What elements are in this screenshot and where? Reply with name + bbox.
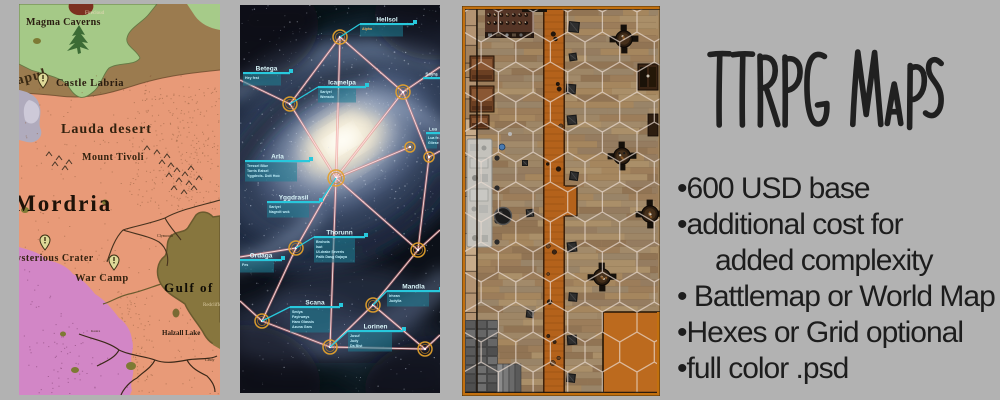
svg-text:Wensdo: Wensdo (320, 95, 335, 99)
svg-text:Da Bist: Da Bist (350, 344, 363, 348)
svg-text:Sariyel: Sariyel (269, 205, 281, 209)
svg-text:Arla: Arla (271, 154, 284, 161)
svg-text:Scana: Scana (305, 300, 325, 307)
svg-text:Palik Dasg Gajaya: Palik Dasg Gajaya (316, 255, 348, 259)
svg-text:Fes: Fes (242, 263, 248, 267)
svg-text:Jusuf: Jusuf (350, 334, 360, 338)
svg-text:Kastra: Kastra (91, 329, 101, 333)
svg-text:Clymouth: Clymouth (157, 233, 173, 238)
svg-text:Azuna Gars: Azuna Gars (292, 325, 312, 329)
svg-text:Mount Tivoli: Mount Tivoli (82, 152, 144, 163)
svg-text:Hellsol: Hellsol (376, 17, 398, 24)
svg-text:Brohots: Brohots (316, 240, 330, 244)
svg-text:Nagrolt wok: Nagrolt wok (269, 210, 290, 214)
svg-text:Castle Labria: Castle Labria (56, 78, 124, 89)
svg-text:Smiya: Smiya (292, 310, 304, 314)
svg-text:Lorinen: Lorinen (364, 324, 388, 331)
svg-text:Firecloud: Firecloud (85, 11, 105, 16)
svg-text:Yggdrasil: Yggdrasil (279, 195, 309, 202)
svg-text:Judy: Judy (350, 339, 358, 343)
svg-text:Ul-drake Severis: Ul-drake Severis (316, 250, 344, 254)
svg-text:Irhean: Irhean (389, 294, 400, 298)
svg-text:Sayra: Sayra (425, 72, 438, 77)
svg-text:Mordria: Mordria (19, 191, 112, 216)
svg-text:Gliese: Gliese (428, 141, 439, 145)
svg-text:Lua fe: Lua fe (428, 136, 439, 140)
svg-text:ysterious Crater: ysterious Crater (19, 253, 94, 264)
svg-text:Halzall Lake: Halzall Lake (162, 329, 200, 337)
svg-text:Redcliffe: Redcliffe (203, 303, 220, 308)
svg-text:Magma Caverns: Magma Caverns (26, 17, 101, 28)
svg-text:Gulf of: Gulf of (164, 280, 214, 295)
svg-text:Mandla: Mandla (402, 284, 425, 291)
svg-text:Alpha: Alpha (362, 27, 373, 31)
svg-text:War Camp: War Camp (75, 273, 129, 284)
svg-text:Fayirways: Fayirways (292, 315, 309, 319)
svg-text:Lauda desert: Lauda desert (61, 122, 152, 137)
svg-text:Judylla: Judylla (389, 299, 402, 303)
svg-text:Thorunn: Thorunn (326, 230, 352, 237)
svg-text:Tressel Blue: Tressel Blue (247, 164, 268, 168)
svg-text:Haro Glassis: Haro Glassis (292, 320, 314, 324)
svg-text:Hey fest: Hey fest (245, 76, 260, 80)
svg-text:Sariyel: Sariyel (320, 90, 332, 94)
svg-text:Torris Eatsel: Torris Eatsel (247, 169, 269, 173)
svg-text:Icamelpa: Icamelpa (328, 80, 356, 87)
svg-text:Yggdrols- Dolt Hoo: Yggdrols- Dolt Hoo (247, 174, 281, 178)
svg-text:Isut: Isut (316, 245, 323, 249)
svg-text:Betega: Betega (256, 66, 278, 73)
svg-text:Lua: Lua (429, 127, 437, 132)
svg-text:Lindy: Lindy (205, 357, 215, 362)
svg-text:Ordaga: Ordaga (250, 253, 273, 260)
